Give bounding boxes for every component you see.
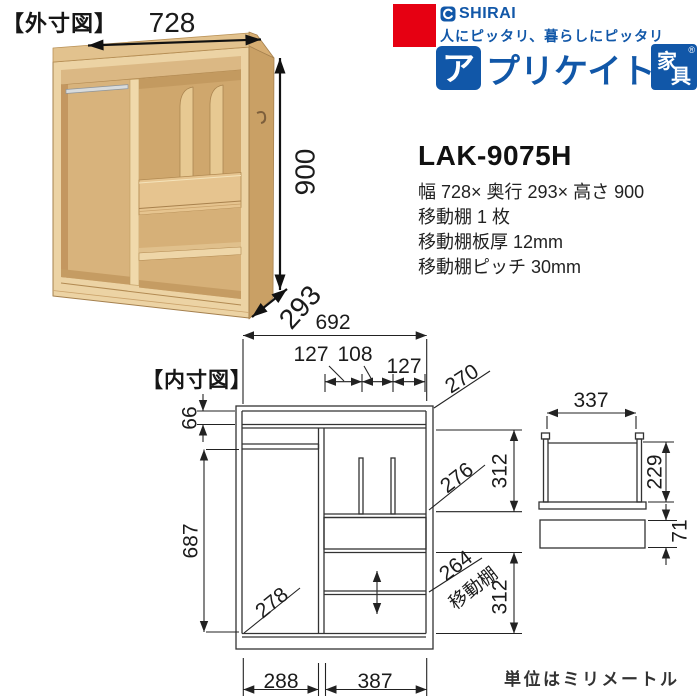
dim-upper-right-height-312: 312 (489, 453, 512, 488)
series-first-char: ア (442, 52, 475, 85)
slot-divider (180, 87, 193, 179)
dim-upper-right-depth-276: 276 (436, 458, 478, 498)
dim-lower-right-height-312: 312 (489, 579, 512, 614)
dim-side-width-337: 337 (573, 389, 608, 412)
shirai-mark-icon (440, 6, 456, 22)
cabinet-side-panel-body (249, 46, 274, 319)
dim-inner-width-692: 692 (315, 311, 350, 334)
category-badge: 家 具 ® (651, 44, 697, 90)
dim-height-900: 900 (290, 149, 321, 196)
dim-seg-left-127: 127 (293, 343, 328, 366)
cabinet-photo (53, 32, 274, 319)
product-model: LAK-9075H (418, 140, 644, 172)
spec-size: 幅 728× 奥行 293× 高さ 900 (418, 180, 644, 205)
dim-bottom-right-387: 387 (357, 670, 392, 693)
dim-top-clearance-66: 66 (179, 406, 202, 429)
internal-diagram-label: 【内寸図】 (142, 364, 252, 394)
diagram-graphics: 728 900 293 (0, 0, 700, 700)
spec-shelf-count: 移動棚 1 枚 (418, 205, 644, 230)
spec-shelf-thickness: 移動棚板厚 12mm (418, 230, 644, 255)
dim-width-728: 728 (149, 7, 196, 38)
center-divider (130, 79, 139, 286)
dim-left-depth-278: 278 (251, 583, 293, 623)
brand-red-square (393, 4, 436, 47)
slot-divider (210, 85, 223, 177)
side-detail-view (539, 433, 646, 548)
dim-seg-mid-108: 108 (337, 343, 372, 366)
registered-mark: ® (688, 45, 695, 55)
dim-seg-right-127: 127 (386, 355, 421, 378)
product-info: LAK-9075H 幅 728× 奥行 293× 高さ 900 移動棚 1 枚 … (418, 140, 644, 280)
external-diagram-label: 【外寸図】 (2, 6, 117, 38)
dim-bottom-left-288: 288 (263, 670, 298, 693)
left-compartment (61, 80, 130, 285)
spec-shelf-pitch: 移動棚ピッチ 30mm (418, 255, 644, 280)
series-logo-rest: プリケイト (486, 46, 655, 90)
dim-top-depth-270: 270 (441, 360, 483, 398)
dim-left-height-687: 687 (180, 523, 203, 558)
catalog-image: 728 900 293 (0, 0, 700, 700)
dim-side-drawer-71: 71 (669, 519, 692, 542)
dim-side-height-229: 229 (644, 454, 667, 489)
unit-note: 単位はミリメートル (504, 665, 680, 690)
series-logo-first-char: ア (436, 46, 481, 90)
shirai-logo: SHIRAI (440, 5, 516, 23)
category-char-bottom: 具 (671, 60, 691, 89)
shirai-wordmark: SHIRAI (459, 5, 516, 23)
